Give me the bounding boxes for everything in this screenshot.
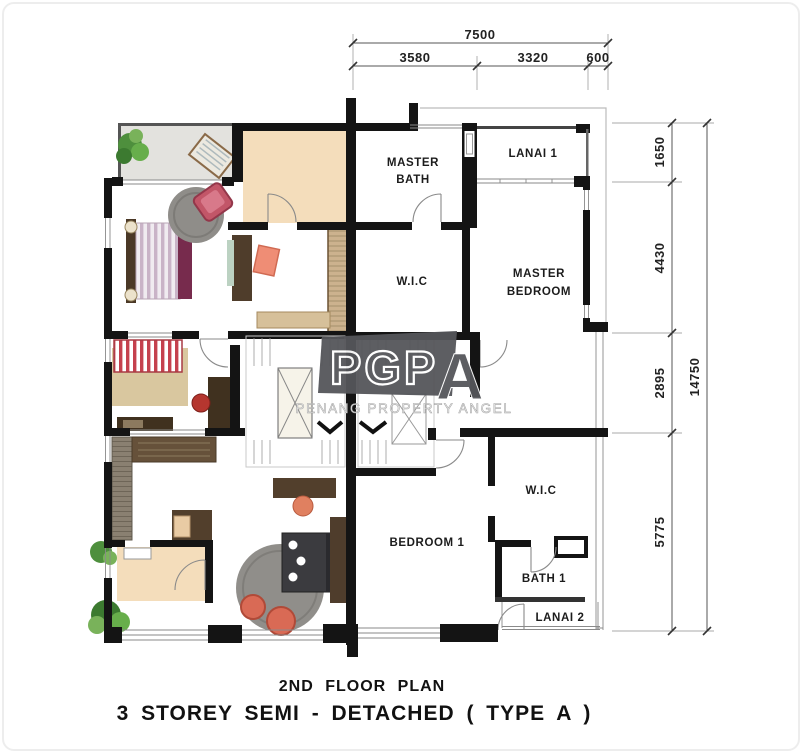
label-wic-top: W.I.C [396, 276, 427, 288]
dim-right-total: 14750 [687, 358, 702, 397]
pouf-icon [241, 595, 265, 619]
dim-top-seg1: 3580 [400, 50, 431, 65]
pouf2-icon [267, 607, 295, 635]
label-bath1: BATH 1 [522, 573, 566, 585]
left-unit [88, 123, 356, 643]
ottoman-icon [253, 245, 279, 276]
desk3-chair-icon [293, 496, 313, 516]
stair-arrow-left-icon [318, 422, 342, 432]
desk-chair-icon [192, 394, 210, 412]
dim-right-seg4: 5775 [652, 517, 667, 548]
roof-line [420, 108, 606, 332]
dim-top-total: 7500 [465, 27, 496, 42]
bench-icon [257, 312, 330, 328]
dim-right-seg1: 1650 [652, 137, 667, 168]
stair-arrow-right-icon [360, 422, 386, 432]
label-lanai1: LANAI 1 [509, 148, 558, 160]
dim-top-seg3: 600 [586, 50, 609, 65]
dim-right-seg3: 2895 [652, 368, 667, 399]
desk3-icon [273, 478, 336, 498]
dim-top-seg2: 3320 [518, 50, 549, 65]
plan-titles: 2ND FLOOR PLAN 3 STOREY SEMI - DETACHED … [117, 678, 592, 725]
watermark: PGP A PENANG PROPERTY ANGEL [296, 331, 513, 416]
floor-plan-page: 7500 3580 3320 600 1650 4430 2895 5775 1… [0, 0, 800, 751]
plan-title-line1: 2ND FLOOR PLAN [279, 678, 445, 695]
label-master-bath-2: BATH [396, 174, 430, 186]
dimension-right: 1650 4430 2895 5775 14750 [612, 119, 714, 635]
label-master-bath-1: MASTER [387, 157, 439, 169]
label-master-bedroom-1: MASTER [513, 268, 565, 280]
left-bath-floor [243, 131, 346, 223]
watermark-tagline: PENANG PROPERTY ANGEL [296, 401, 513, 416]
desk-icon [208, 377, 230, 428]
dim-right-seg2: 4430 [652, 243, 667, 274]
plan-title-line2: 3 STOREY SEMI - DETACHED ( TYPE A ) [117, 702, 592, 725]
bed2-icon [282, 533, 332, 592]
floor-plan-drawing: 7500 3580 3320 600 1650 4430 2895 5775 1… [0, 0, 800, 751]
vanity [556, 538, 586, 556]
label-lanai2: LANAI 2 [536, 612, 585, 624]
dresser-icon [232, 235, 252, 301]
watermark-logo-pgp: PGP [330, 341, 438, 394]
label-master-bedroom-2: BEDROOM [507, 286, 571, 298]
label-wic-bottom: W.I.C [525, 485, 556, 497]
label-bedroom1: BEDROOM 1 [389, 537, 464, 549]
daybed-icon [114, 340, 182, 372]
wardrobe2-icon [112, 437, 132, 540]
dimension-top: 7500 3580 3320 600 [349, 27, 612, 90]
